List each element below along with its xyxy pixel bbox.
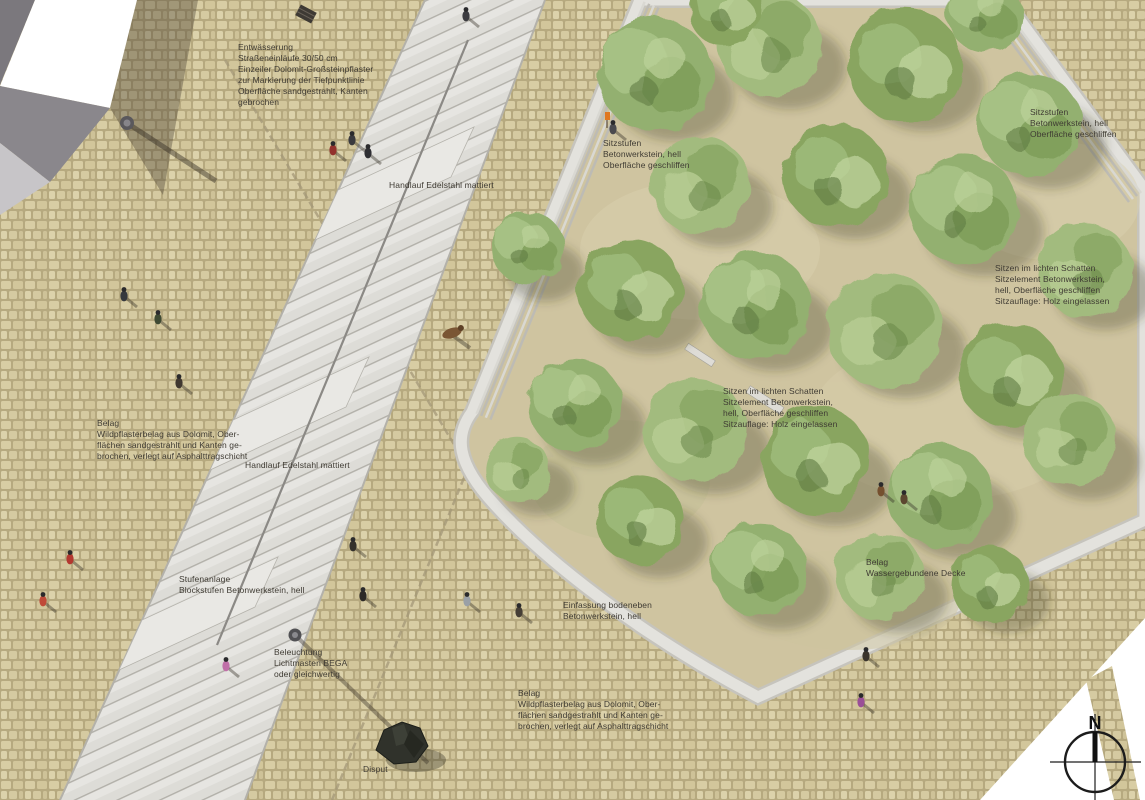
site-plan-canvas: N Entwässerung Straßeneinläufe 30/50 cm … <box>0 0 1145 800</box>
site-plan-drawing: N <box>0 0 1145 800</box>
north-label: N <box>1089 713 1102 733</box>
